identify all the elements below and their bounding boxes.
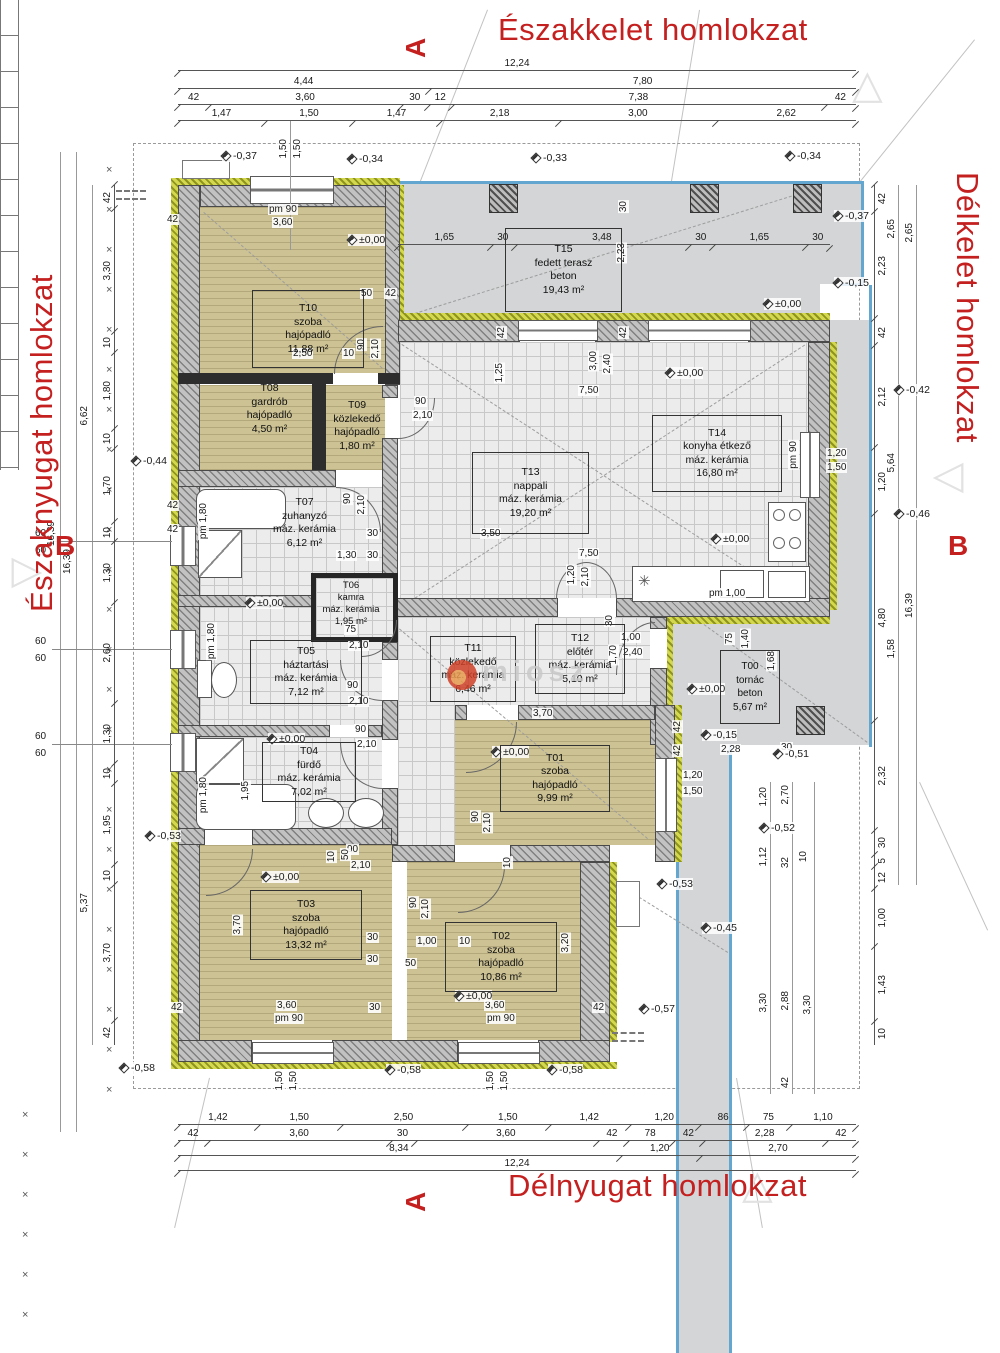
dim-label: 60 <box>34 653 47 664</box>
dim-segment: 5 <box>874 855 889 868</box>
dim-label: 1,12 <box>758 846 769 867</box>
window <box>250 176 334 204</box>
dimension-line <box>898 185 899 885</box>
dim-label: 2,65 <box>886 218 897 239</box>
page-edge-ruler <box>0 0 19 470</box>
dim-segment: 3,00 <box>559 108 716 121</box>
dim-label: 10 <box>798 850 809 863</box>
level-marker: -0,53 <box>146 830 181 842</box>
dim-segment: 42 <box>825 92 856 105</box>
dim-label: 42 <box>672 720 683 733</box>
dim-segment: 75 <box>747 1112 790 1125</box>
level-marker: -0,34 <box>786 150 821 162</box>
room-label-t02: T02szobahajópadló10,86 m² <box>445 922 557 992</box>
dim-label: 2,88 <box>780 990 791 1011</box>
watermark-text: miosz <box>482 656 589 689</box>
level-marker: -0,34 <box>348 153 383 165</box>
dim-label: 2,70 <box>780 784 791 805</box>
dim-label: 3,70 <box>532 708 553 719</box>
dimension-line <box>814 782 815 1094</box>
room-label-t01: T01szobahajópadló9,99 m² <box>500 745 610 812</box>
elevation-triangle-icon: △ <box>852 62 883 108</box>
wall-segment <box>178 470 336 487</box>
dim-segment: 2,62 <box>716 108 856 121</box>
dim-label: 2,40 <box>602 353 613 374</box>
dim-label: 42 <box>496 326 507 339</box>
dim-label: 16,39 <box>904 592 915 619</box>
dim-label: 2,65 <box>904 222 915 243</box>
dim-segment: 2,70 <box>700 1143 856 1156</box>
dim-label: 60 <box>34 731 47 742</box>
dim-label: 2,10 <box>370 338 381 359</box>
dimension-chain-top-1: 12,24 <box>178 58 856 71</box>
dim-label: 1,50 <box>274 1070 285 1091</box>
dim-label: 90 <box>470 810 481 823</box>
room-label-t05: T05háztartásimáz. kerámia7,12 m² <box>250 640 362 704</box>
dim-segment: 1,47 <box>353 108 440 121</box>
dim-label: 42 <box>780 1076 791 1089</box>
dimension-chain-bottom-1: 1,42 1,50 2,50 1,50 1,42 1,20 86 75 1,10 <box>178 1112 856 1125</box>
dim-label: 3,30 <box>758 992 769 1013</box>
drain-mark <box>612 1040 644 1042</box>
dim-label: 90 <box>408 896 419 909</box>
drain-mark <box>612 1032 644 1034</box>
wall-segment <box>385 185 400 385</box>
section-marker-b-left: B <box>55 530 75 562</box>
dim-segment: 2,50 <box>341 1112 466 1125</box>
dim-label: 1,00 <box>416 936 437 947</box>
dimension-line <box>916 185 917 885</box>
dim-label: 2,10 <box>356 739 377 750</box>
dim-segment: 1,42 <box>549 1112 629 1125</box>
dim-label: 10 <box>502 856 513 869</box>
dim-label: 3,60 <box>272 217 293 228</box>
dimension-chain-top-4: 1,47 1,50 1,47 2,18 3,00 2,62 <box>178 108 856 121</box>
window <box>655 758 677 832</box>
dim-label: pm 1,00 <box>708 588 746 599</box>
dim-label: 32 <box>780 856 791 869</box>
dim-label: 3,30 <box>802 994 813 1015</box>
dim-label: 1,95 <box>240 780 251 801</box>
floor-plan-canvas: Északkelet homlokzat Délnyugat homlokzat… <box>0 0 1000 1353</box>
dim-label: 30 <box>366 528 379 539</box>
level-marker: -0,46 <box>895 508 930 520</box>
dim-label: pm 90 <box>486 1013 516 1024</box>
wall-segment <box>382 598 558 617</box>
facade-title-northeast: Északkelet homlokzat <box>498 12 808 48</box>
dim-segment: 1,20 <box>620 1143 700 1156</box>
level-marker: -0,37 <box>834 210 869 222</box>
level-marker: -0,45 <box>702 922 737 934</box>
dim-segment: 86 <box>699 1112 747 1125</box>
dim-segment: 10 <box>874 1022 889 1045</box>
dim-segment: 1,95 <box>100 784 115 865</box>
dim-segment: 3,60 <box>208 1128 390 1141</box>
room-label-t14: T14konyha étkezőmáz. kerámia16,80 m² <box>652 415 782 492</box>
sink-symbol-icon: ✳ <box>638 572 651 590</box>
dim-segment: 2,12 <box>874 346 889 448</box>
dim-label: 30 <box>366 550 379 561</box>
dim-segment: 1,00 <box>874 889 889 947</box>
wall-segment <box>178 185 200 1045</box>
level-marker: ±0,00 <box>764 298 801 310</box>
room-label-t07: T07zuhanyzómáz. kerámia6,12 m² <box>252 492 357 554</box>
level-marker: ±0,00 <box>712 533 749 545</box>
wall-segment <box>178 1040 252 1062</box>
wall-segment <box>382 700 398 740</box>
dim-label: 7,50 <box>578 548 599 559</box>
room-label-t09: T09közlekedőhajópadló1,80 m² <box>318 390 396 462</box>
room-label-t10: T10szobahajópadló11,88 m² <box>252 290 364 368</box>
level-marker: -0,42 <box>895 384 930 396</box>
dimension-chain-left: 42 3,30 10 1,80 10 1,70 10 1,30 2,60 1,3… <box>100 185 115 1045</box>
dim-segment: 12,24 <box>178 58 856 71</box>
dim-label: 90 <box>414 396 427 407</box>
dim-segment: 3,60 <box>415 1128 597 1141</box>
dim-label: 1,50 <box>278 138 289 159</box>
room-floor-t11 <box>398 705 455 845</box>
drain-mark <box>116 190 146 192</box>
level-marker: ±0,00 <box>246 597 283 609</box>
dim-segment: 2,60 <box>100 603 115 704</box>
dim-segment: 10 <box>100 522 115 543</box>
dim-label: 2,40 <box>622 647 643 658</box>
dim-label: pm 90 <box>274 1013 304 1024</box>
dim-label: 3,00 <box>588 350 599 371</box>
dim-segment: 1,30 <box>100 704 115 764</box>
dim-segment: 2,28 <box>703 1128 825 1141</box>
level-marker: ±0,00 <box>348 234 385 246</box>
dim-label: 1,25 <box>494 362 505 383</box>
dim-segment: 10 <box>100 429 115 450</box>
window <box>170 630 196 669</box>
level-marker: -0,57 <box>640 1003 675 1015</box>
dim-label: 1,58 <box>886 638 897 659</box>
projection-line <box>919 782 988 931</box>
dim-label: 1,20 <box>566 564 577 585</box>
dim-segment: 2,18 <box>440 108 559 121</box>
dim-segment: 3,70 <box>100 885 115 1020</box>
entry-step <box>182 160 230 179</box>
dim-label: 60 <box>34 636 47 647</box>
dim-label: 6,62 <box>79 405 90 426</box>
level-marker: -0,15 <box>702 729 737 741</box>
walkway-edge-line <box>729 745 732 1353</box>
garden-walkway <box>679 745 729 1353</box>
dim-label: 1,20 <box>682 770 703 781</box>
room-label-t03: T03szobahajópadló13,32 m² <box>250 890 362 960</box>
dimension-chain-top-3: 42 3,60 30 12 7,38 42 <box>178 92 856 105</box>
dim-segment: 42 <box>100 185 115 209</box>
dim-label: 2,10 <box>580 566 591 587</box>
dimension-chain-bottom-3: 8,34 1,20 2,70 <box>178 1143 856 1156</box>
dim-segment: 4,44 <box>178 76 429 89</box>
dim-segment: 78 <box>627 1128 673 1141</box>
section-marker-a-top: A <box>400 38 432 58</box>
window <box>648 320 751 341</box>
room-label-t00: T00tornácbeton5,67 m² <box>720 650 780 724</box>
level-marker: -0,33 <box>532 152 567 164</box>
level-marker: ±0,00 <box>262 871 299 883</box>
sink-icon <box>308 798 344 828</box>
dim-segment: 4,80 <box>874 514 889 720</box>
dimension-chain-bottom-2: 42 3,60 30 3,60 42 78 42 2,28 42 <box>178 1128 856 1141</box>
dim-label: pm 90 <box>268 204 298 215</box>
facade-title-southeast: Délkelet homlokzat <box>949 172 985 443</box>
dim-segment: 42 <box>178 1128 208 1141</box>
dim-label: 90 <box>354 724 367 735</box>
dim-segment: 10 <box>100 865 115 886</box>
porch-pillar <box>796 706 825 735</box>
dim-segment: 1,50 <box>258 1112 341 1125</box>
level-marker: -0,51 <box>774 748 809 760</box>
dim-label: 60 <box>34 748 47 759</box>
dim-label: pm 90 <box>788 440 799 470</box>
dim-segment: 42 <box>100 1021 115 1045</box>
dim-label: 42 <box>592 1002 605 1013</box>
dim-label: 30 <box>366 932 379 943</box>
dim-label: 42 <box>166 524 179 535</box>
level-marker: -0,58 <box>548 1064 583 1076</box>
dim-segment: 42 <box>673 1128 703 1141</box>
dim-segment: 1,42 <box>178 1112 258 1125</box>
dim-label: 1,50 <box>292 138 303 159</box>
dim-label: pm 1,80 <box>198 502 209 540</box>
dim-segment: 3,30 <box>100 209 115 332</box>
insulation-strip <box>398 313 830 320</box>
dim-label: 7,50 <box>578 385 599 396</box>
dim-label: 3,20 <box>560 932 571 953</box>
dim-label: 42 <box>384 288 397 299</box>
dim-segment: 42 <box>597 1128 627 1141</box>
dim-label: 2,28 <box>720 744 741 755</box>
dim-label: 42 <box>672 744 683 757</box>
dimension-chain-top-2: 4,44 7,80 <box>178 76 856 89</box>
dim-label: 1,50 <box>499 1070 510 1091</box>
dim-segment: 1,47 <box>178 108 265 121</box>
dim-segment: 1,70 <box>100 449 115 522</box>
wall-segment <box>378 373 400 384</box>
wall-segment <box>510 845 610 862</box>
level-marker: -0,53 <box>658 878 693 890</box>
drain-mark <box>116 198 146 200</box>
dim-label: 1,50 <box>485 1070 496 1091</box>
dim-label: 2,10 <box>420 898 431 919</box>
level-marker: -0,58 <box>386 1064 421 1076</box>
level-marker: ±0,00 <box>666 367 703 379</box>
insulation-strip <box>171 178 178 1062</box>
level-marker: -0,58 <box>120 1062 155 1074</box>
room-label-t15: T15fedett teraszbeton19,43 m² <box>505 228 622 312</box>
dim-segment: 12 <box>428 92 452 105</box>
wall-segment <box>538 1040 610 1062</box>
dim-segment: 30 <box>689 232 713 245</box>
roof-edge-line <box>861 181 864 285</box>
dim-segment: 1,80 <box>100 353 115 429</box>
window <box>800 432 820 498</box>
dim-segment: 42 <box>826 1128 856 1141</box>
facade-title-southwest: Délnyugat homlokzat <box>508 1168 807 1204</box>
dim-label: 42 <box>170 1002 183 1013</box>
level-marker: -0,52 <box>760 822 795 834</box>
wall-segment <box>748 320 830 342</box>
dim-label: 2,10 <box>482 812 493 833</box>
dim-label: 42 <box>618 326 629 339</box>
room-label-t06: T06kamramáz. kerámia1,95 m² <box>316 578 386 630</box>
dim-label: 3,70 <box>232 914 243 935</box>
tick-column: × × × × × × <box>22 1095 28 1335</box>
dim-label: 50 <box>340 848 351 861</box>
toilet-icon <box>197 660 212 698</box>
dim-label: 5,37 <box>79 892 90 913</box>
section-marker-b-right: B <box>948 530 968 562</box>
dim-label: 50 <box>404 958 417 969</box>
level-marker: -0,15 <box>834 277 869 289</box>
dim-segment: 30 <box>401 92 428 105</box>
dim-label: 1,50 <box>288 1070 299 1091</box>
wall-segment <box>178 725 330 737</box>
dim-segment: 1,20 <box>629 1112 699 1125</box>
dim-label: 30 <box>366 954 379 965</box>
dimension-chain-right: 42 2,23 42 2,12 1,20 4,80 2,32 30 5 12 1… <box>874 185 889 1045</box>
dim-label: 42 <box>166 500 179 511</box>
terrace-pillar <box>489 184 518 213</box>
dim-segment: 2,32 <box>874 721 889 831</box>
dim-label: 30 <box>368 1002 381 1013</box>
dim-label: 75 <box>724 632 735 645</box>
level-marker: -0,44 <box>132 455 167 467</box>
dim-segment: 1,10 <box>790 1112 856 1125</box>
dimension-line <box>76 152 77 1132</box>
window <box>170 733 196 772</box>
wall-segment <box>455 705 467 720</box>
elevation-triangle-icon: △ <box>922 463 968 494</box>
wall-segment <box>368 725 382 737</box>
window <box>458 1042 540 1064</box>
window <box>518 320 598 341</box>
level-marker: -0,37 <box>222 150 257 162</box>
dim-segment: 1,43 <box>874 947 889 1022</box>
dim-segment: 42 <box>178 92 209 105</box>
terrace-pillar <box>793 184 822 213</box>
dim-segment: 1,50 <box>466 1112 549 1125</box>
sink-icon <box>348 798 384 828</box>
dimension-line <box>92 185 93 1045</box>
exterior-step <box>616 881 640 927</box>
wall-segment <box>252 828 392 845</box>
dim-label: 1,50 <box>826 462 847 473</box>
wall-segment <box>580 862 610 1042</box>
watermark-logo-icon <box>447 660 477 690</box>
dim-label: 5,64 <box>886 452 897 473</box>
window <box>252 1042 334 1064</box>
dim-label: pm 1,80 <box>206 622 217 660</box>
wall-segment <box>332 1040 458 1062</box>
dim-label: 1,20 <box>826 448 847 459</box>
stove-icon <box>768 502 806 562</box>
insulation-strip <box>830 342 837 610</box>
dishwasher-icon <box>768 571 806 598</box>
dim-segment: 1,65 <box>398 232 491 245</box>
toilet-icon <box>211 662 237 698</box>
dim-segment: 7,80 <box>429 76 856 89</box>
dim-segment: 30 <box>806 232 830 245</box>
dim-segment: 8,34 <box>178 1143 620 1156</box>
wall-segment <box>392 845 455 862</box>
room-label-t08: T08gardróbhajópadló4,50 m² <box>222 376 317 442</box>
dim-segment: 1,65 <box>713 232 806 245</box>
dim-segment: 30 <box>390 1128 415 1141</box>
dim-segment: 10 <box>100 332 115 353</box>
reference-line <box>290 120 291 250</box>
dim-segment: 1,30 <box>100 542 115 602</box>
dim-segment: 1,50 <box>265 108 353 121</box>
dim-label: 1,20 <box>758 786 769 807</box>
dim-label: 10 <box>326 850 337 863</box>
room-label-t13: T13nappalimáz. kerámia19,20 m² <box>472 452 589 534</box>
dim-segment: 7,38 <box>452 92 825 105</box>
wall-segment <box>178 828 205 845</box>
dim-label: pm 1,80 <box>198 776 209 814</box>
dim-label: 2,10 <box>356 494 367 515</box>
terrace-pillar <box>690 184 719 213</box>
dim-label: 1,40 <box>740 628 751 649</box>
dim-label: 2,10 <box>350 860 371 871</box>
insulation-strip <box>660 617 830 624</box>
dim-label: 42 <box>166 214 179 225</box>
dim-label: 2,10 <box>412 410 433 421</box>
dim-segment: 3,60 <box>209 92 401 105</box>
dim-label: 1,50 <box>682 786 703 797</box>
room-label-t04: T04fürdőmáz. kerámia7,02 m² <box>262 742 356 802</box>
dim-label: 30 <box>618 200 629 213</box>
dimension-line <box>60 152 61 1132</box>
dim-segment: 10 <box>100 764 115 785</box>
dim-label: 3,60 <box>276 1000 297 1011</box>
section-marker-a-bottom: A <box>400 1192 432 1212</box>
